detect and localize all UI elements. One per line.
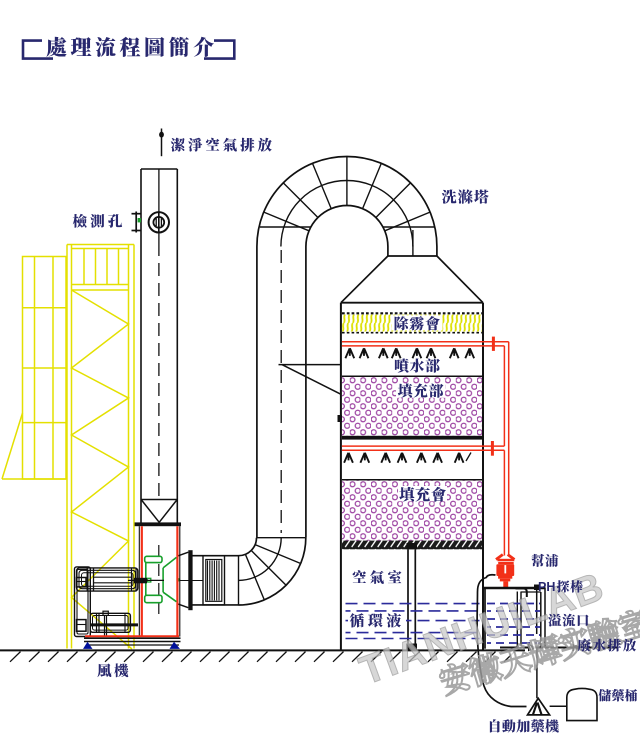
svg-text:PH: PH: [538, 580, 555, 594]
